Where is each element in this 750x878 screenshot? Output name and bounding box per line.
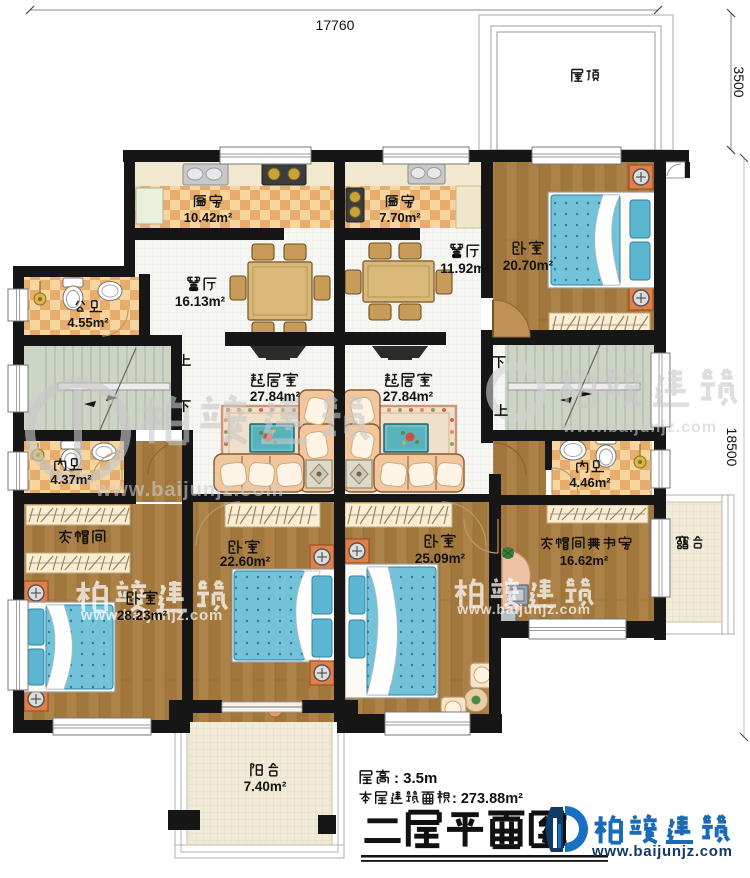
svg-text:: 3.5m: : 3.5m (394, 770, 437, 787)
svg-text:11.92m²: 11.92m² (440, 261, 490, 276)
svg-text:7.70m²: 7.70m² (379, 210, 421, 225)
svg-text:7.40m²: 7.40m² (244, 779, 287, 794)
svg-text:25.09m²: 25.09m² (415, 551, 466, 566)
svg-text:4.46m²: 4.46m² (569, 475, 611, 490)
svg-text:3500: 3500 (731, 66, 747, 97)
svg-text:www.baijunjz.com: www.baijunjz.com (456, 601, 591, 617)
svg-text:10.42m²: 10.42m² (184, 210, 233, 225)
svg-text:18500: 18500 (724, 428, 740, 467)
svg-text:16.62m²: 16.62m² (560, 553, 609, 568)
svg-text:www.baijunjz.com: www.baijunjz.com (95, 479, 285, 501)
svg-text:27.84m²: 27.84m² (250, 389, 301, 404)
svg-text:www.baijunjz.com: www.baijunjz.com (562, 419, 717, 436)
svg-text:17760: 17760 (316, 17, 355, 33)
svg-text:22.60m²: 22.60m² (220, 554, 271, 569)
svg-text:20.70m²: 20.70m² (503, 258, 554, 273)
svg-text:4.37m²: 4.37m² (50, 472, 92, 487)
svg-text:: 273.88m²: : 273.88m² (452, 791, 523, 807)
svg-text:www.baijunjz.com: www.baijunjz.com (591, 843, 733, 860)
svg-text:27.84m²: 27.84m² (383, 389, 434, 404)
svg-text:4.55m²: 4.55m² (67, 315, 109, 330)
svg-text:16.13m²: 16.13m² (175, 294, 226, 309)
svg-text:28.23m²: 28.23m² (117, 608, 168, 623)
